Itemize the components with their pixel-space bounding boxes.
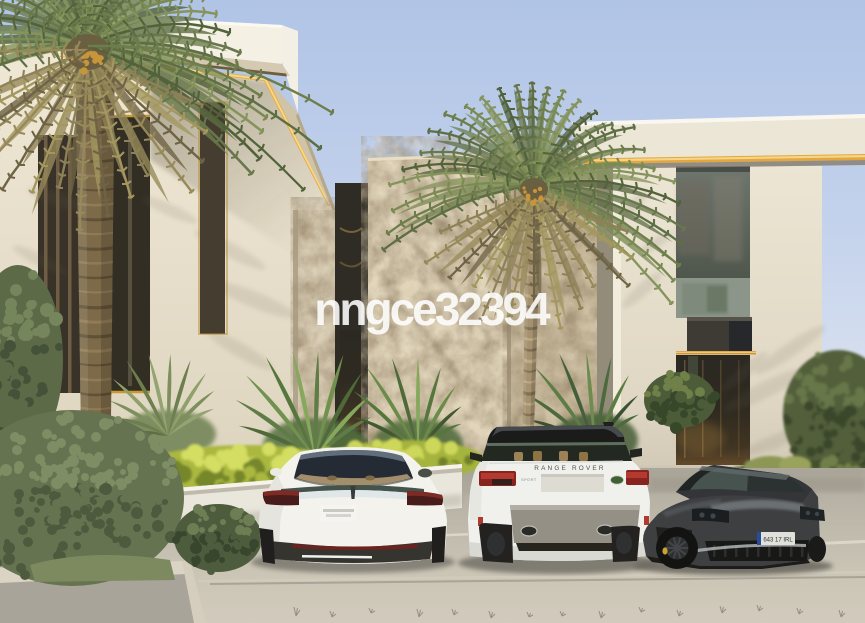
svg-text:nngce32394: nngce32394 [314, 283, 551, 335]
svg-text:643 17 IRL: 643 17 IRL [763, 538, 793, 544]
svg-text:RANGE ROVER: RANGE ROVER [534, 465, 605, 472]
svg-text:SPORT: SPORT [521, 477, 537, 482]
